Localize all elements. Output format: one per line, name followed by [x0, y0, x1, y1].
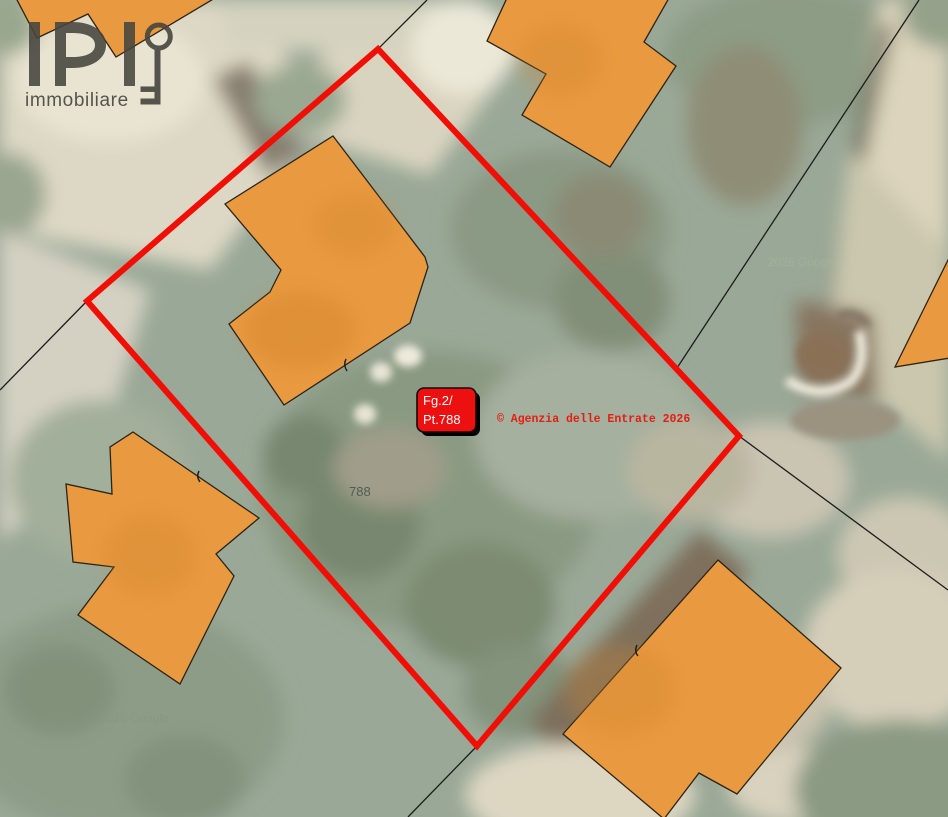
svg-text:© Agenzia delle Entrate 2026: © Agenzia delle Entrate 2026 [497, 413, 690, 426]
svg-text:Fg.2/: Fg.2/ [423, 393, 453, 408]
svg-text:788: 788 [349, 484, 371, 499]
svg-text:2026 Google: 2026 Google [768, 255, 837, 269]
svg-text:Pt.788: Pt.788 [423, 412, 461, 427]
svg-text:immobiliare: immobiliare [25, 90, 129, 111]
svg-text:2026 Google: 2026 Google [100, 711, 169, 725]
